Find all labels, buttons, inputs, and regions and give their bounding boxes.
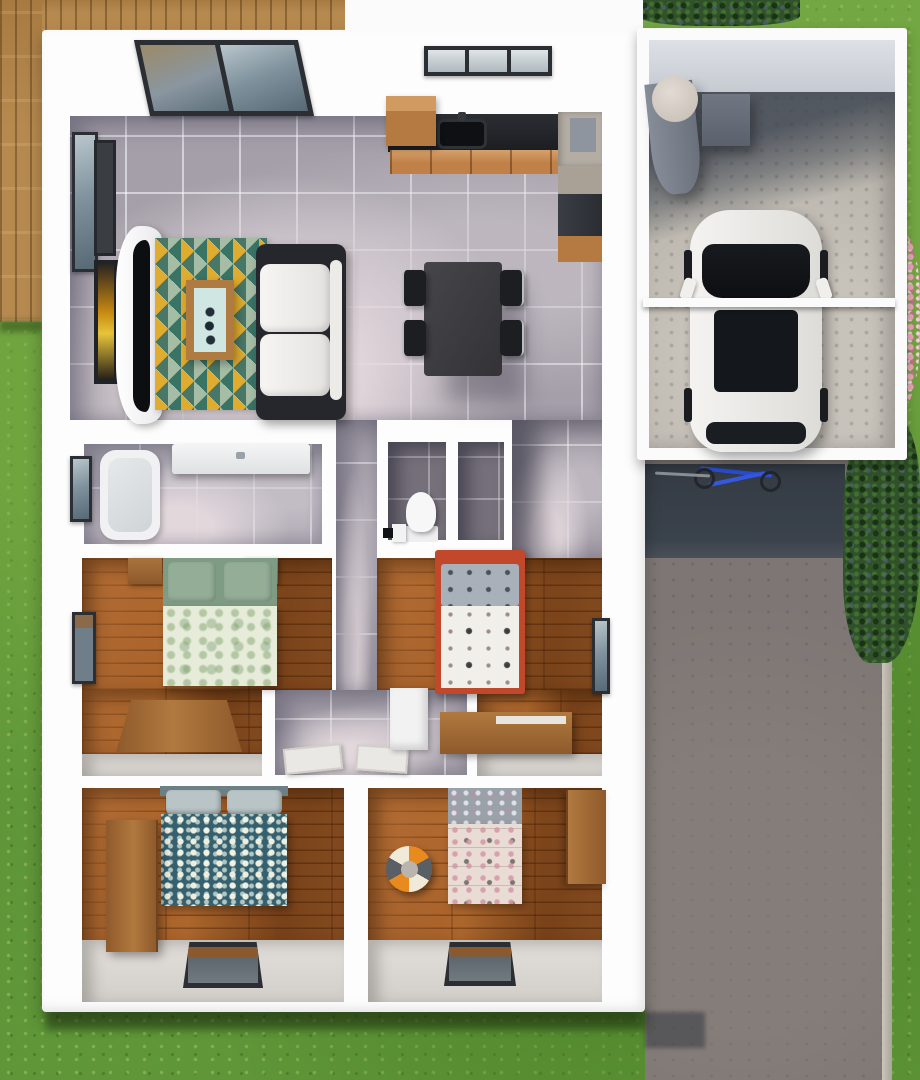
sofa-cushion — [260, 264, 330, 332]
wc-mat — [383, 528, 393, 538]
water-tank-lid — [652, 76, 698, 122]
wall-art-frame — [94, 140, 116, 256]
wc-floor-right — [458, 442, 504, 540]
driveway-corner-shadow — [645, 1012, 705, 1048]
bedroom2-window — [592, 618, 610, 694]
dining-table — [424, 262, 502, 376]
toilet — [406, 492, 436, 532]
bedroom4-window — [444, 942, 516, 986]
dining-chair — [500, 270, 524, 306]
window-glass — [595, 621, 607, 691]
wall-art-amber — [94, 260, 118, 384]
bedroom3-window — [183, 942, 263, 988]
bed1-pillow — [224, 562, 272, 602]
bathroom-window — [70, 456, 92, 522]
utility-box — [702, 94, 750, 146]
beach-ball-center — [401, 861, 418, 878]
skylight-glass — [219, 45, 308, 111]
wc-cabinet — [392, 524, 406, 542]
skylight-window — [134, 40, 314, 116]
cooker-unit — [558, 194, 602, 236]
bed4-pillow-area — [448, 788, 522, 824]
hall-tile-vertical — [336, 420, 377, 690]
car-windshield — [702, 244, 810, 298]
nightstand — [128, 558, 162, 584]
bedroom2-floor-light — [477, 754, 602, 776]
bedroom3-wardrobe — [106, 820, 158, 952]
hall-tile-right — [512, 420, 602, 558]
wall-tv — [133, 240, 150, 412]
dining-chair — [402, 270, 426, 306]
bedroom1-floor-light — [82, 754, 262, 776]
window-glass — [428, 50, 465, 72]
fridge-top — [570, 118, 596, 152]
dining-chair — [500, 320, 524, 356]
bicycle-wheel — [760, 471, 781, 492]
deck-shadow — [0, 320, 42, 332]
house-top-wall — [345, 0, 643, 32]
garage-door-beam — [643, 298, 895, 307]
bathroom-vanity — [172, 444, 310, 474]
kitchen-sink — [437, 119, 487, 149]
bed2-pillows — [441, 564, 519, 606]
bed3-pillow — [227, 790, 282, 814]
bed1-duvet-green — [163, 606, 277, 686]
vanity-faucet — [236, 452, 245, 459]
window-glass — [188, 947, 258, 983]
bedroom1-window — [72, 612, 96, 684]
sofa-backrest — [330, 260, 342, 400]
kitchen-low-cabinet — [558, 236, 602, 262]
sink-faucet — [458, 112, 466, 121]
bed1-pillow — [168, 562, 216, 602]
window-glass — [75, 135, 95, 269]
sofa-cushion — [260, 334, 330, 396]
kitchen-window — [424, 46, 552, 76]
bedroom4-desk — [566, 790, 606, 884]
bedroom2-desk — [390, 688, 428, 750]
kitchen-wall-cabinet — [386, 96, 436, 146]
bedroom1-dresser — [116, 700, 242, 752]
bathtub-basin — [108, 458, 152, 532]
bed3-duvet-teal-floral — [161, 814, 287, 906]
shrubs-top — [638, 0, 800, 26]
car-sunroof — [714, 310, 798, 392]
kitchen-unit — [558, 166, 602, 194]
bicycle-wheel — [694, 468, 715, 489]
window-glass — [469, 50, 506, 72]
wood-deck-left — [0, 0, 42, 322]
dining-chair — [402, 320, 426, 356]
car-rear-window — [706, 422, 806, 444]
window-glass — [75, 615, 93, 681]
scene-3d-floor-plan — [0, 0, 920, 1080]
coffee-table-decor — [204, 306, 216, 346]
bed4-quilt-pink — [448, 824, 522, 904]
car-wheel — [820, 388, 828, 422]
car-wheel — [684, 388, 692, 422]
window-glass — [449, 947, 511, 981]
bed2-duvet — [441, 606, 519, 688]
window-glass — [73, 459, 89, 519]
dresser-runner — [496, 716, 566, 724]
bed3-pillow — [166, 790, 221, 814]
skylight-glass — [140, 45, 229, 111]
wood-deck-top — [0, 0, 346, 32]
window-glass — [511, 50, 548, 72]
curb-edge — [882, 660, 892, 1080]
